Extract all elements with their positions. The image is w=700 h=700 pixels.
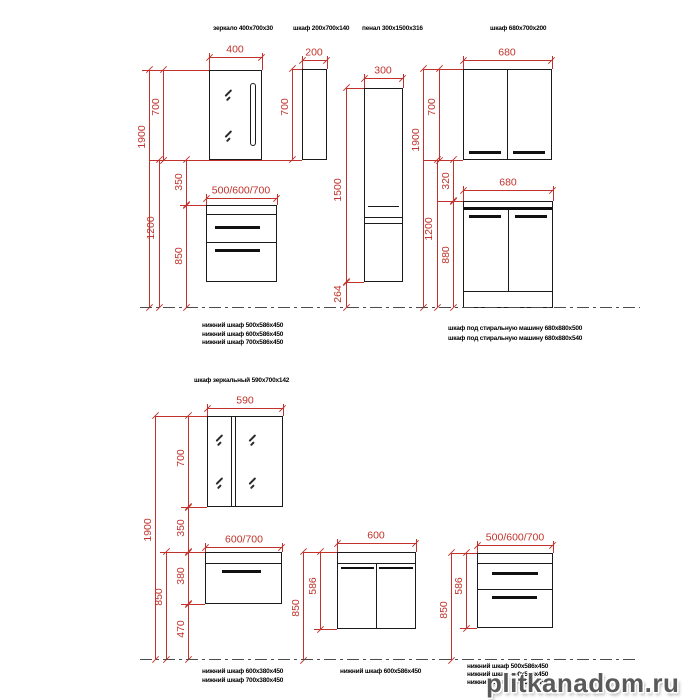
dim-line-1200-left	[159, 160, 160, 307]
dim-label-upper-cabinet-width: 680	[498, 48, 516, 59]
dim-line-gap-350	[186, 160, 187, 205]
vanity1-outline	[205, 552, 282, 604]
site-watermark: plitkanadom.ru	[486, 668, 679, 699]
vanity1-countertop-line	[205, 563, 282, 564]
dim-line-mirror-cabinet-height	[188, 416, 189, 507]
extension-line	[303, 552, 337, 553]
dim-label-vanity-width: 500/600/700	[212, 186, 270, 197]
dim-line-vanity1-height	[188, 552, 189, 604]
extension-line	[292, 69, 302, 70]
dim-label-vanity3-850: 850	[439, 601, 450, 619]
dim-line-cabinet200-height	[292, 69, 293, 159]
dim-label-cabinet200-width: 200	[305, 48, 323, 59]
dim-label-gap-320: 320	[441, 172, 452, 190]
extension-line	[160, 552, 205, 553]
extension-line	[477, 541, 478, 553]
dim-line-vanity2-height	[320, 552, 321, 629]
dim-label-upper-cabinet-height: 700	[427, 98, 438, 116]
extension-line	[302, 56, 303, 69]
dim-line-vanity1-floor-gap	[188, 604, 189, 659]
dim-line-mirror-cabinet-width	[207, 408, 283, 409]
product-label-mirror: зеркало 400x700x30	[213, 25, 273, 32]
dim-line-vanity2-width	[337, 543, 416, 544]
dim-label-vanity2-height: 586	[308, 577, 319, 595]
mirror-cabinet-outline	[207, 416, 283, 507]
product-label-penal: пенал 300x1500x316	[362, 25, 423, 32]
extension-line	[180, 205, 207, 206]
penal-handle-line	[368, 206, 399, 207]
vanity2-door-divider	[376, 563, 377, 629]
dim-label-washer-cabinet-width: 680	[499, 178, 517, 189]
washer-cabinet-door-divider	[508, 210, 509, 291]
extension-line	[337, 539, 338, 552]
dim-line-850-left	[186, 205, 187, 307]
dim-line-total-height-right	[423, 69, 424, 307]
mirror-light-strip	[250, 83, 256, 146]
extension-line	[277, 194, 278, 205]
cabinet-200-outline	[302, 69, 327, 160]
dim-line-vanity3-850	[451, 553, 452, 660]
dim-label-total-height-bottom: 1900	[143, 518, 154, 541]
dim-label-gap-350: 350	[174, 173, 185, 191]
dim-label-mirror-cabinet-width: 590	[236, 396, 254, 407]
extension-line	[314, 629, 337, 630]
extension-line	[364, 74, 365, 88]
dim-line-upper-cabinet-width	[463, 60, 552, 61]
vanity3-drawer-divider	[477, 589, 553, 590]
dim-label-total-height-left: 1900	[137, 125, 148, 148]
drawer-handle	[222, 570, 261, 573]
extension-line	[451, 553, 477, 554]
floor-baseline-bottom	[140, 659, 636, 660]
dim-line-1200-right	[437, 160, 438, 307]
caption-line: шкаф под стиральную машину 680x880x540	[448, 335, 582, 342]
dim-label-mirror-width: 400	[226, 45, 244, 56]
caption-line: нижний шкаф 700x586x450	[202, 339, 283, 346]
extension-line	[346, 88, 364, 89]
door-handle	[469, 215, 501, 218]
extension-line	[149, 160, 302, 161]
dim-line-gap-350-bottom	[188, 507, 189, 552]
vanity-drawer-divider	[206, 242, 277, 243]
extension-line	[463, 186, 464, 201]
extension-line	[327, 56, 328, 69]
dim-label-mirror-cabinet-height: 700	[176, 449, 187, 467]
door-handle	[515, 215, 547, 218]
caption-line: нижний шкаф 700x380x450	[202, 677, 283, 684]
product-label-cabinet680: шкаф 680x700x200	[490, 25, 546, 32]
dim-line-upper-cabinet-height	[439, 69, 440, 160]
extension-line	[416, 539, 417, 552]
extension-line	[553, 541, 554, 553]
extension-line	[209, 53, 210, 70]
penal-outline	[364, 88, 403, 282]
dim-line-vanity-width	[206, 198, 277, 199]
extension-line	[460, 628, 477, 629]
extension-line	[262, 53, 263, 70]
vanity-two-drawer-outline	[206, 205, 277, 282]
dim-line-vanity2-850	[303, 552, 304, 660]
dim-line-washer-cabinet-width	[463, 190, 553, 191]
vanity3-countertop-line	[477, 563, 553, 564]
dim-label-washer-height: 880	[441, 246, 452, 264]
drawer-handle	[492, 572, 538, 575]
drawer-handle	[492, 596, 537, 599]
caption-line: нижний шкаф 600x586x450	[202, 331, 283, 338]
bottom-section-title: шкаф зеркальный 590x700x142	[194, 377, 289, 384]
dim-label-total-height-right: 1900	[411, 128, 422, 151]
dim-label-mirror-height: 700	[151, 98, 162, 116]
caption-line: нижний шкаф 600x586x450	[340, 668, 421, 675]
dim-label-850-bottom-left: 850	[154, 588, 165, 606]
vanity3-outline	[477, 553, 553, 628]
extension-line	[142, 70, 209, 71]
extension-line	[181, 604, 205, 605]
dim-label-penal-width: 300	[374, 66, 392, 77]
product-label-cabinet200: шкаф 200x700x140	[293, 25, 349, 32]
dim-label-1200-right: 1200	[424, 217, 435, 240]
door-handle	[469, 151, 501, 154]
dim-label-vanity3-width: 500/600/700	[486, 533, 544, 544]
extension-line	[282, 543, 283, 552]
dim-line-penal-height	[346, 88, 347, 282]
mirror-cabinet-door-divider	[235, 416, 236, 507]
penal-divider-line	[364, 217, 403, 218]
dim-label-vanity1-floor-gap: 470	[176, 620, 187, 638]
vanity-countertop-line	[206, 214, 277, 215]
dim-label-vanity2-850: 850	[291, 599, 302, 617]
extension-line	[205, 543, 206, 552]
dim-line-total-height-bottom	[155, 416, 156, 659]
drawer-handle	[215, 249, 260, 252]
dim-label-cabinet200-height: 700	[280, 98, 291, 116]
dim-line-850-bottom-left	[166, 552, 167, 659]
extension-line	[552, 56, 553, 69]
extension-line	[403, 74, 404, 88]
dim-line-vanity1-width	[205, 547, 282, 548]
extension-line	[423, 69, 463, 70]
dim-line-mirror-width	[209, 57, 262, 58]
dim-line-penal-floor-gap	[346, 282, 347, 307]
door-handle	[513, 151, 545, 154]
dim-label-1200-left: 1200	[146, 216, 157, 239]
dim-label-vanity1-height: 380	[176, 567, 187, 585]
dim-line-vanity3-height	[466, 553, 467, 628]
furniture-dimension-drawing: зеркало 400x700x30 шкаф 200x700x140 пена…	[0, 0, 700, 700]
drawer-handle	[215, 226, 260, 229]
dim-label-vanity3-height: 586	[454, 577, 465, 595]
extension-line	[181, 507, 207, 508]
dim-line-gap-320	[453, 160, 454, 201]
door-handle	[379, 567, 413, 569]
extension-line	[207, 404, 208, 416]
washer-cabinet-plinth-line	[463, 291, 553, 292]
dim-label-penal-floor-gap: 264	[333, 285, 344, 303]
dim-line-washer-height	[453, 201, 454, 307]
mirror-cabinet-door-divider	[231, 416, 232, 507]
dim-line-vanity3-width	[477, 545, 553, 546]
extension-line	[437, 201, 463, 202]
extension-line	[346, 282, 364, 283]
dim-line-penal-width	[364, 78, 403, 79]
dim-label-vanity2-width: 600	[367, 531, 385, 542]
dim-line-mirror-height	[163, 70, 164, 160]
dim-label-vanity1-width: 600/700	[225, 535, 263, 546]
door-handle	[341, 567, 374, 569]
extension-line	[206, 194, 207, 205]
extension-line	[155, 416, 207, 417]
extension-line	[283, 404, 284, 416]
dim-label-850-left: 850	[174, 247, 185, 265]
penal-divider-line	[364, 223, 403, 224]
upper-cabinet-door-divider	[507, 70, 508, 159]
extension-line	[463, 56, 464, 69]
caption-line: нижний шкаф 500x586x450	[202, 322, 283, 329]
extension-line	[423, 160, 463, 161]
dim-line-cabinet200-width	[302, 60, 327, 61]
floor-baseline-top	[140, 307, 640, 308]
dim-label-gap-350-bottom: 350	[176, 519, 187, 537]
caption-line: нижний шкаф 600x380x450	[202, 668, 283, 675]
extension-line	[553, 186, 554, 201]
dim-label-penal-height: 1500	[333, 178, 344, 201]
caption-line: шкаф под стиральную машину 680x880x500	[448, 325, 582, 332]
